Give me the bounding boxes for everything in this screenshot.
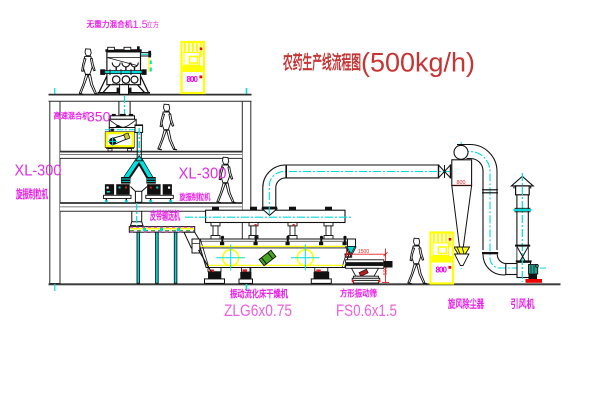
svg-text:方形振动筛: 方形振动筛: [340, 288, 377, 299]
svg-text:1500: 1500: [358, 249, 369, 255]
svg-text:高速混合机: 高速混合机: [54, 111, 91, 121]
svg-text:XL-300: XL-300: [15, 163, 62, 180]
svg-text:XL-300: XL-300: [179, 166, 227, 183]
svg-text:立方: 立方: [147, 20, 160, 29]
svg-text:FS0.6x1.5: FS0.6x1.5: [336, 301, 397, 320]
svg-text:1.5: 1.5: [133, 19, 148, 31]
svg-text:旋振制粒机: 旋振制粒机: [179, 191, 211, 202]
svg-text:旋振制粒机: 旋振制粒机: [15, 187, 48, 202]
svg-text:皮带输送机: 皮带输送机: [149, 208, 180, 223]
svg-text:农药生产线流程图: 农药生产线流程图: [282, 52, 361, 73]
svg-text:振动流化床干燥机: 振动流化床干燥机: [230, 287, 288, 301]
svg-text:(500kg/h): (500kg/h): [361, 48, 475, 78]
svg-text:引风机: 引风机: [511, 296, 535, 310]
svg-text:ZLG6x0.75: ZLG6x0.75: [224, 301, 292, 320]
svg-text:无重力混合机: 无重力混合机: [86, 19, 133, 29]
svg-text:旋风除尘器: 旋风除尘器: [447, 296, 484, 310]
svg-text:350: 350: [87, 109, 111, 125]
